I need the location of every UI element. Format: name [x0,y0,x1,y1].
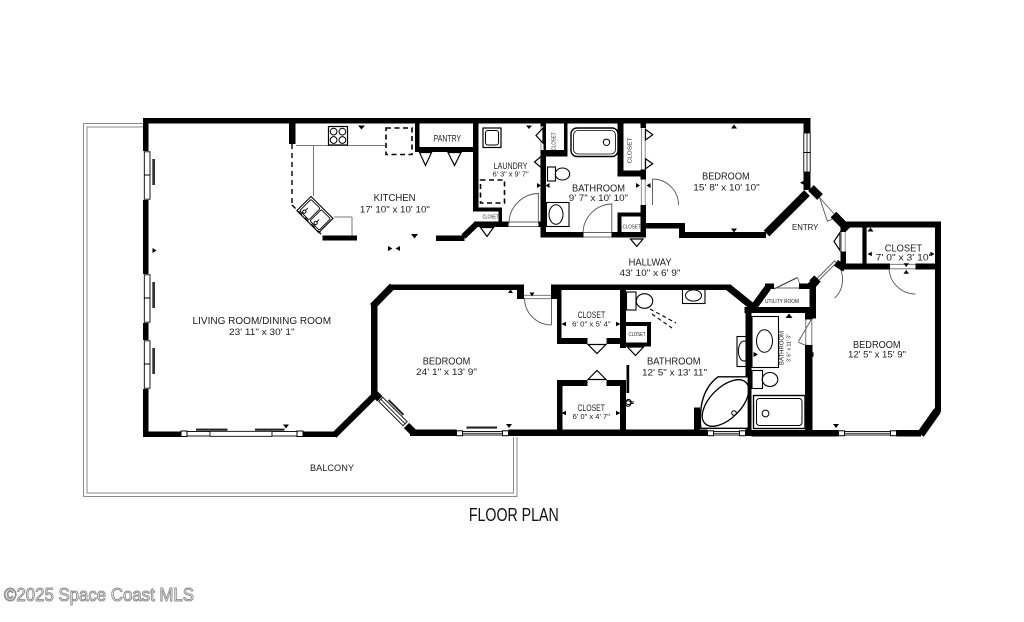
svg-text:7' 0" x 3' 10": 7' 0" x 3' 10" [876,253,933,263]
svg-text:CLOSET: CLOSET [628,137,634,164]
svg-text:UTILITY ROOM: UTILITY ROOM [765,299,799,305]
svg-text:ENTRY: ENTRY [792,223,819,232]
svg-text:BALCONY: BALCONY [310,463,354,473]
svg-text:BATHROOM: BATHROOM [779,331,786,365]
svg-text:3' 6" x 11' 3": 3' 6" x 11' 3" [787,334,793,362]
svg-text:6' 3" x 9' 7": 6' 3" x 9' 7" [493,169,529,178]
svg-text:©2025 Space Coast MLS: ©2025 Space Coast MLS [4,584,194,605]
svg-text:HALLWAY: HALLWAY [629,257,672,268]
svg-text:CLOSET: CLOSET [629,332,647,338]
svg-text:15' 8" x 10' 10": 15' 8" x 10' 10" [693,182,759,193]
svg-text:23' 11" x 30' 1": 23' 11" x 30' 1" [229,326,295,337]
svg-text:12' 5" x 15' 9": 12' 5" x 15' 9" [848,348,906,359]
svg-text:CLOSET: CLOSET [552,132,558,151]
svg-text:12' 5" x 13' 11": 12' 5" x 13' 11" [642,366,707,377]
svg-text:CLOSET: CLOSET [623,225,642,231]
svg-text:24' 1" x 13' 9": 24' 1" x 13' 9" [416,366,477,377]
svg-text:FLOOR PLAN: FLOOR PLAN [469,504,559,525]
svg-text:9' 7" x 10' 10": 9' 7" x 10' 10" [569,192,628,203]
svg-text:43' 10" x 6' 9": 43' 10" x 6' 9" [620,268,681,278]
svg-text:6' 0" x 4' 7": 6' 0" x 4' 7" [573,412,611,421]
svg-text:PANTRY: PANTRY [434,134,462,144]
svg-text:6' 0" x 5' 4": 6' 0" x 5' 4" [572,319,611,328]
svg-text:17' 10" x 10' 10": 17' 10" x 10' 10" [360,203,430,214]
svg-text:CLOSET: CLOSET [483,215,499,221]
